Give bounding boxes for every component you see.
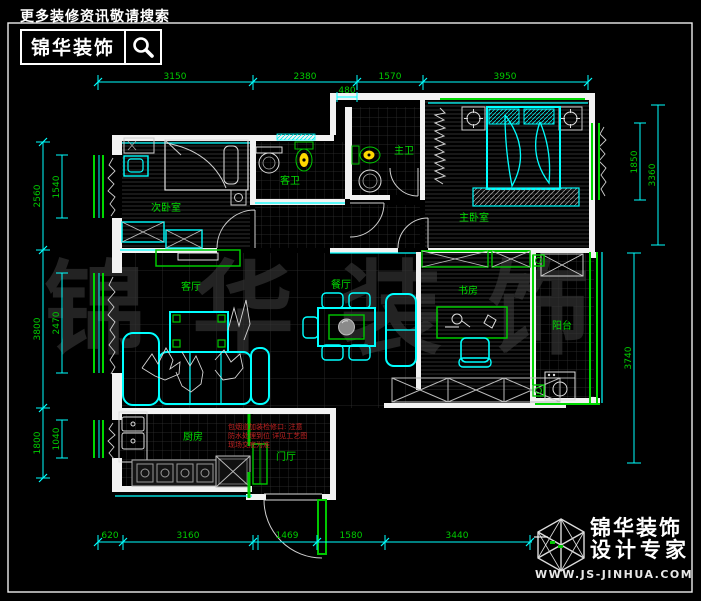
dim-right-1: 3360 <box>648 163 658 186</box>
footer-logo: 锦华装饰 设计专家 WWW.JS-JINHUA.COM <box>532 516 694 588</box>
dim-top-4: 3950 <box>494 72 517 82</box>
room-label-master-bath: 主卫 <box>394 145 414 157</box>
annotation-line: 防水处理到位 详见工艺图 <box>228 431 307 440</box>
room-label-entry: 门厅 <box>276 450 296 463</box>
room-label-dining: 餐厅 <box>331 278 351 291</box>
dim-top-1: 3150 <box>164 72 187 82</box>
room-label-study: 书房 <box>458 284 478 297</box>
room-label-kitchen: 厨房 <box>183 430 203 443</box>
footer-brand: 锦华装饰 <box>590 517 690 539</box>
dim-bottom-3: 1469 <box>276 531 299 541</box>
footer-text: 锦华装饰 设计专家 <box>590 517 690 561</box>
dim-left-inner-1: 1540 <box>52 175 62 198</box>
dim-bottom-1: 620 <box>101 531 118 541</box>
room-label-secondary-bedroom: 次卧室 <box>151 201 181 214</box>
dim-top-sub: 480 <box>338 86 355 96</box>
dim-left-3: 1800 <box>33 431 43 454</box>
cube-logo-icon <box>534 516 588 574</box>
dim-left-inner-3: 1040 <box>52 427 62 450</box>
dim-bottom-2: 3160 <box>177 531 200 541</box>
dim-right-2: 3740 <box>624 346 634 369</box>
brand-box: 锦华装饰 <box>20 29 162 65</box>
room-label-living: 客厅 <box>181 280 201 293</box>
room-label-guest-bath: 客卫 <box>280 174 300 187</box>
dim-top-3: 1570 <box>379 72 402 82</box>
annotation-line: 包烟道加装检修口: 注意 <box>228 422 303 431</box>
footer-website: WWW.JS-JINHUA.COM <box>535 568 693 581</box>
room-label-master-bedroom: 主卧室 <box>459 211 489 224</box>
dim-left-1: 2560 <box>33 184 43 207</box>
dim-left-2: 3800 <box>33 317 43 340</box>
brand-name: 锦华装饰 <box>22 31 124 63</box>
floor-plan: 次卧室 客卫 主卫 主卧室 客厅 餐厅 书房 阳台 厨房 门厅 包烟道加装检修口… <box>0 0 701 601</box>
dim-bottom-4: 1580 <box>340 531 363 541</box>
promo-tagline: 更多装修资讯敬请搜索 <box>20 6 170 26</box>
room-label-balcony: 阳台 <box>552 319 572 332</box>
dim-right-window: 1850 <box>630 150 640 173</box>
promo-header: 更多装修资讯敬请搜索 锦华装饰 <box>20 6 170 65</box>
dim-top-2: 2380 <box>294 72 317 82</box>
dim-left-inner-2: 2470 <box>52 311 62 334</box>
dim-bottom-5: 3440 <box>446 531 469 541</box>
footer-subtitle: 设计专家 <box>590 539 690 561</box>
search-icon <box>124 31 160 63</box>
annotation-line: 现场交底为准 <box>228 440 270 449</box>
